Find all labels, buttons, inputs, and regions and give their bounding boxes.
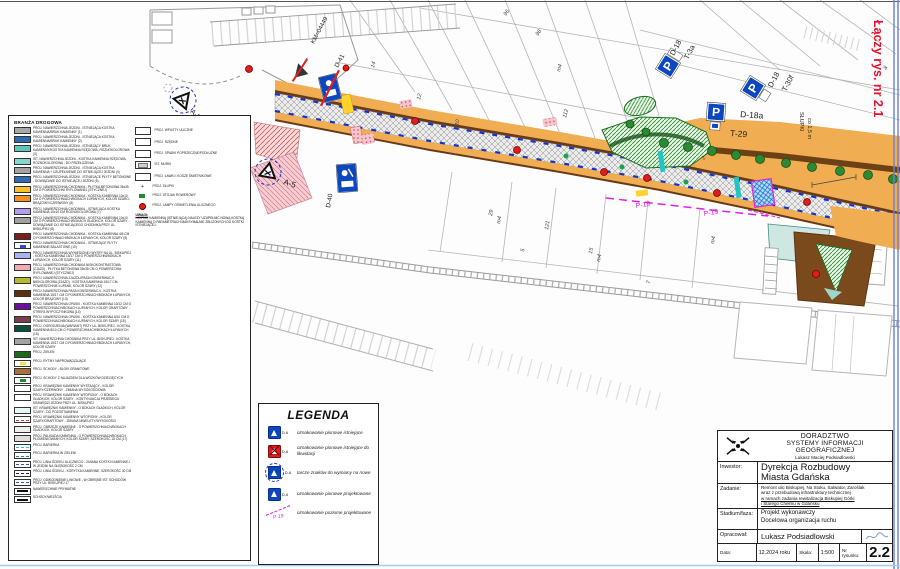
investor-value: Dyrekcja Rozbudowy Miasta Gdańska (758, 462, 892, 483)
legend-label: PROJ. OBRZEŻE KAMIENNE - O POWIERZCHNIAC… (33, 426, 131, 434)
swatch-inner (20, 379, 26, 382)
legend-swatch (14, 158, 31, 165)
upper-parking-lot (150, 4, 460, 98)
task-label: Zadanie: (718, 484, 758, 508)
parcel-number: 5 (520, 247, 527, 252)
legend-side-label: PROJ. WPUSTY ULICZNE (154, 129, 192, 133)
investor-label: Inwestor: (718, 462, 758, 483)
road-works-legend-panel: BRANŻA DROGOWA PROJ. NAWIERZCHNIA JEZDNI… (8, 115, 251, 561)
legend-side-row: PROJ. LAMPY OŚWIETLENIA ULICZNEGO (135, 203, 247, 209)
legend-label: IST. KRAWĘŻNIK KAMIENNY - O BOKACH GŁADK… (33, 407, 131, 415)
legend-label: PROJ. NAWIERZCHNIA WYNIESIONEJ WYSPY NA … (33, 252, 131, 263)
legend-label: PROJ. ZIELEŃ (33, 351, 54, 355)
legend-label: PROJ. NAWIERZCHNIA CHODNIKA - ISTNIEJĄCA… (33, 208, 131, 216)
number-label-cell: Nr rysunku: (840, 544, 867, 561)
signage-legend-box: LEGENDA D-6oznakowanie pionowe istniejąc… (258, 403, 379, 565)
legend-row: PROJ. NAWIERZCHNIA WYNIESIONEJ WYSPY NA … (14, 252, 131, 263)
legend-side-label: PROJ. RZĘDNE (154, 141, 177, 145)
legend-side-label: PROJ. SŁUPKI (152, 185, 174, 189)
legend-side-label: PROJ. SPADKI POPRZECZNE/PODŁUŻNE (154, 152, 217, 156)
legenda-label: oznakowanie poziome projektowane (297, 510, 371, 516)
legenda-row: P-19oznakowanie poziome projektowane (263, 506, 374, 520)
swatch-line (16, 473, 29, 474)
legend-label: PROJ. NAWIERZCHNIA CHODNIKA - KOSTKA KAM… (33, 217, 131, 232)
legend-row: PROJ. ZIELEŃ (14, 351, 131, 358)
author-value: Lukasz Podsiadlowski (758, 530, 861, 543)
legend-label: PROJ. KRAWĘŻNIK KAMIENNY WYSTAJĄCY - KOL… (33, 385, 131, 393)
pink-hatch-zone (250, 152, 312, 214)
investor-line2: Miasta Gdańska (761, 473, 889, 483)
legend-swatch (14, 316, 31, 323)
legend-swatch (14, 338, 31, 345)
legend-label: PROJ. NAWIERZCHNIA OPASKI - KOSTKA KAMIE… (33, 303, 131, 314)
legend-label: PROJ. RYTMY NAPROWADZAJĄCE (33, 360, 86, 364)
legenda-row: D-6tarcze znaków do wymiany na nowe (263, 463, 374, 482)
swatch-line (16, 447, 29, 448)
legend-swatch (14, 394, 31, 401)
legend-row: IST. KRAWĘŻNIK KAMIENNY - O BOKACH GŁADK… (14, 407, 131, 415)
swatch-plaque (17, 490, 28, 492)
legend-swatch (14, 461, 31, 468)
legend-row: PROJ. BARIERKA W ZIELENI (14, 452, 131, 459)
parcel-number: 98 (535, 28, 544, 37)
legend-row: PROJ. NAWIERZCHNIA JEZDNI - ISTNIEJĄCE P… (14, 176, 131, 184)
legenda-icon: D-6 (263, 445, 293, 458)
legend-swatch (14, 470, 31, 477)
legend-row: PROJ. PALISADA KAMIENNA - O POWIERZCHNIA… (14, 435, 131, 443)
legend-swatch (14, 136, 31, 143)
legend-swatch (14, 233, 31, 240)
map-label: P-19 (703, 209, 719, 218)
parcel-number: m4 (596, 254, 603, 263)
legenda-row: D-6oznakowanie pionowe istniejące (263, 426, 374, 439)
legend-swatch (14, 290, 31, 297)
legend-swatch (14, 377, 31, 384)
legend-row: PROJ. NAWIERZCHNIA PASA KONSERWACJI - KO… (14, 290, 131, 301)
company-line3: Lukasz Maciej Podsiadlowski (761, 455, 889, 460)
map-label: SŁUPKI (798, 112, 804, 132)
legend-note-text: KOSTKĘ KAMIENNĄ (ISTNIEJĄCĄ) NALEŻY UZUP… (135, 217, 245, 229)
swatch-line (16, 420, 29, 421)
legend-swatch (14, 195, 31, 202)
legenda-label: tarcze znaków do wymiany na nowe (297, 470, 371, 476)
legend-swatch (14, 167, 31, 174)
map-label: T-30f (780, 73, 796, 93)
legend-swatch (14, 351, 31, 358)
legend-swatch (14, 264, 31, 271)
legend-swatch (14, 252, 31, 259)
drawing-number-label: Nr rysunku: (842, 548, 864, 558)
legend-swatch (14, 479, 31, 486)
map-label: D-18 (766, 70, 782, 89)
date-value: 12.2024 roku (759, 550, 795, 556)
sign-replace-circle-icon (265, 463, 284, 482)
legend-label: IST. NAWIERZCHNIA CHODNIKA PRZY UL. BISK… (33, 338, 131, 349)
legend-side-label: PROJ. STOJAK ROWEROWY (152, 194, 195, 198)
signature (861, 530, 892, 543)
legend-label: PROJ. NAWIERZCHNIA JEZDNI - ISTNIEJĄCA K… (33, 167, 131, 175)
symbol-box-icon (135, 127, 151, 135)
road-legend-items: PROJ. NAWIERZCHNIA JEZDNI - ISTNIEJĄCA K… (14, 127, 131, 505)
disabled-parking-bay (751, 179, 774, 208)
legend-side-row: PROJ. WPUSTY ULICZNE (135, 127, 247, 135)
legend-side-row: PROJ. STOJAK ROWEROWY (135, 193, 247, 199)
legend-label: PROJ. NAWIERZCHNIA PASA KONSERWACJI - KO… (33, 290, 131, 301)
legend-swatch (14, 444, 31, 451)
legend-row: IST. NAWIERZCHNIA JEZDNI - KOSTKA KAMIEN… (14, 158, 131, 166)
swatch-inner (20, 245, 26, 248)
parcel-number: 15 (588, 246, 595, 254)
road-legend-title: BRANŻA DROGOWA (14, 120, 247, 125)
legend-label: IST. NAWIERZCHNIA JEZDNI - KOSTKA KAMIEN… (33, 158, 131, 166)
lower-parking-stalls (255, 301, 660, 402)
legenda-label: oznakowanie pionowe istniejące (297, 430, 363, 436)
legend-swatch (14, 407, 31, 414)
legend-label: PROJ. NAWIERZCHNIA CHODNIKA - KOSTKA KAM… (33, 233, 131, 241)
map-label: P-19 (635, 201, 651, 210)
sign-code: D-6 (285, 470, 291, 475)
stage-line2: Docelowa organizacja ruchu (761, 518, 889, 526)
legend-side-row: IST. MURKI (135, 161, 247, 169)
parking-sign-letter: P (711, 105, 720, 120)
legend-row: PROJ. OBRZEŻE KAMIENNE - O POWIERZCHNIAC… (14, 426, 131, 434)
legend-label: PROJ. NAWIERZCHNIA JEZDNI - ISTNIEJĄCY B… (33, 145, 131, 156)
legenda-row: D-6oznakowanie pionowe istniejące do lik… (263, 445, 374, 458)
legend-label: PROJ. SCHODY Z NAJAZDEM DLA WÓZKÓW DZIEC… (33, 377, 123, 381)
bike-rack-icon (135, 193, 149, 199)
legend-label: PROJ. LINIA ŚCIEKU - KORYTKA KAMIENNE, S… (33, 470, 131, 474)
company-line2: SYSTEMY INFORMACJI GEOGRAFICZNEJ (761, 440, 889, 454)
legend-swatch (14, 452, 31, 459)
parcel-number: m4 (496, 216, 503, 225)
sign-code: D-6 (282, 430, 288, 435)
swatch-inner (20, 362, 26, 365)
task-line: i Starego Chełmu w Gdańsku (761, 501, 889, 506)
legend-label: PROJ. ODWODNIENIE LINIOWE - W OBRĘBIE IS… (33, 479, 131, 487)
legend-row: PROJ. SCHODY Z NAJAZDEM DLA WÓZKÓW DZIEC… (14, 377, 131, 384)
symbol-box-icon (135, 173, 151, 181)
map-label: T-29 (730, 128, 748, 139)
legend-side-label: IST. MURKI (154, 163, 171, 167)
drawing-sheet: { "connector_note": "Łączy rys. nr 2.1",… (0, 0, 900, 569)
wall-icon (135, 161, 151, 169)
legend-side-row: PROJ. ŁAWKI I KOSZE ŚMIETNIKOWE (135, 173, 247, 181)
legend-label: PROJ. NAWIERZCHNIA CHODNIKA - KOSTKA KAM… (33, 195, 131, 206)
legenda-items: D-6oznakowanie pionowe istniejąceD-6ozna… (263, 426, 374, 520)
parcel-number: 29 (488, 209, 495, 217)
legenda-row: D-6oznakowanie pionowe projektowane (263, 488, 374, 501)
legend-swatch (14, 217, 31, 224)
legend-row: PROJ. RYTMY NAPROWADZAJĄCE (14, 360, 131, 367)
swatch-line (16, 482, 29, 483)
legend-row: PROJ. NAWIERZCHNIA JEZDNI - ISTNIEJĄCY B… (14, 145, 131, 156)
legenda-icon: D-6 (263, 488, 293, 501)
parcel-number: 121 (544, 220, 552, 230)
legend-swatch (14, 416, 31, 423)
legend-swatch (14, 277, 31, 284)
sign-code: D-6 (282, 449, 288, 454)
legend-row: NAWIERZCHNIE PRYWATNE (14, 488, 131, 495)
wall-inner (138, 163, 148, 168)
crossing-sign-removed-icon (268, 445, 281, 458)
legend-row: PROJ. SCHODY - BLOKI GRANITOWE (14, 368, 131, 375)
legend-row: PROJ. NAWIERZCHNIA JEZDNI - ISTNIEJĄCA K… (14, 136, 131, 144)
legend-row: PROJ. NAWIERZCHNIA CHODNIKA - KOSTKA KAM… (14, 233, 131, 241)
bollard-icon: + (135, 184, 149, 190)
legend-row: PROJ. NAWIERZCHNIA ZJAZDU/PASA KONSERWAC… (14, 277, 131, 288)
sign-liquidated (288, 59, 312, 82)
legenda-icon: D-6 (263, 426, 293, 439)
legend-side-label: PROJ. LAMPY OŚWIETLENIA ULICZNEGO (152, 204, 215, 208)
legend-row: PROJ. NAWIERZCHNIA CHODNIKA - ISTNIEJĄCE… (14, 242, 131, 250)
legend-label: PROJ. NAWIERZCHNIA JEZDNI - ISTNIEJĄCA K… (33, 136, 131, 144)
crossing-sign-icon (268, 488, 281, 501)
legend-note: UWAGI: KOSTKĘ KAMIENNĄ (ISTNIEJĄCĄ) NALE… (135, 213, 245, 229)
legend-label: PROJ. KRAWĘŻNIK KAMIENNY WTOPIONY - KOLO… (33, 416, 131, 424)
legend-label: PROJ. PALISADA KAMIENNA - O POWIERZCHNIA… (33, 435, 131, 443)
legend-swatch (14, 208, 31, 215)
legenda-label: oznakowanie pionowe istniejące do likwid… (297, 445, 374, 456)
legend-row: PROJ. BARIERKA (14, 444, 131, 451)
author-label: Opracował: (718, 530, 758, 543)
legend-label: NAWIERZCHNIE PRYWATNE (33, 488, 76, 492)
legend-swatch (14, 325, 31, 332)
legend-label: PROJ. SCHODY - BLOKI GRANITOWE (33, 368, 90, 372)
parcel-number: m4 (556, 64, 564, 73)
legend-row: PROJ. NAWIERZCHNIA CHODNIKA - KOSTKA KAM… (14, 217, 131, 232)
legenda-title: LEGENDA (263, 408, 374, 422)
sign-d40-projected (336, 163, 358, 192)
company-block: DORADZTWO SYSTEMY INFORMACJI GEOGRAFICZN… (758, 431, 892, 461)
legend-label: PROJ. NAWIERZCHNIA CHODNIKA NISKOKONTRAS… (33, 264, 131, 275)
legend-swatch (14, 176, 31, 183)
legend-side-row: PROJ. RZĘDNE (135, 138, 247, 146)
legend-row: PROJ. KRAWĘŻNIK KAMIENNY WYSTAJĄCY - KOL… (14, 385, 131, 393)
symbol-box-icon (135, 150, 151, 158)
scale-value: 1:500 (821, 550, 837, 556)
legend-row: PROJ. NAWIERZCHNIA CHODNIKA NISKOKONTRAS… (14, 264, 131, 275)
legend-label: PROJ. BARIERKA W ZIELENI (33, 452, 76, 456)
legend-row: PROJ. NAWIERZCHNIA CHODNIKA - PŁYTKA BET… (14, 186, 131, 194)
legend-swatch (14, 127, 31, 134)
legend-label: PROJ. NAWIERZCHNIA CHODNIKA - ISTNIEJĄCE… (33, 242, 131, 250)
stage-label: Stadium/faza: (718, 509, 758, 530)
crossing-sign-icon (268, 466, 281, 479)
stage-value: Projekt wykonawczy Docelowa organizacja … (758, 509, 892, 530)
legend-label: PROJ. NAWIERZCHNIA CHODNIKA - PŁYTKA BET… (33, 186, 131, 194)
drawing-number: 2.2 (867, 544, 892, 561)
swatch-line (16, 464, 29, 465)
legend-row: PROJ. KRAWĘŻNIK KAMIENNY WTOPIONY - O BO… (14, 394, 131, 405)
title-block: DORADZTWO SYSTEMY INFORMACJI GEOGRAFICZN… (717, 430, 893, 562)
legend-swatch (14, 145, 31, 152)
legenda-label: oznakowanie pionowe projektowane (297, 491, 371, 497)
small-stalls (805, 32, 862, 46)
legend-row: PROJ. NAWIERZCHNIA JEZDNI - ISTNIEJĄCA K… (14, 127, 131, 135)
legend-side-label: PROJ. ŁAWKI I KOSZE ŚMIETNIKOWE (154, 175, 211, 179)
lamp-icon (135, 203, 149, 209)
date-value-cell: 12.2024 roku (757, 544, 798, 561)
date-label: Data: (720, 550, 754, 555)
road-legend-side-items: PROJ. WPUSTY ULICZNEPROJ. RZĘDNEPROJ. SP… (135, 127, 247, 209)
legend-label: PROJ. NAWIERZCHNIA ZJAZDU/PASA KONSERWAC… (33, 277, 131, 288)
crossing-sign-icon (268, 426, 281, 439)
p19-line-icon: P-19 (265, 506, 291, 520)
parcel-number: 112 (562, 108, 570, 118)
date-label-cell: Data: (718, 544, 757, 561)
legend-row: PROJ. NAWIERZCHNIA JEZDNI - ISTNIEJĄCA K… (14, 167, 131, 175)
legend-swatch (14, 303, 31, 310)
scale-label-cell: Skala: (797, 544, 818, 561)
company-line1: DORADZTWO (761, 433, 889, 440)
legend-swatch (14, 488, 31, 495)
legend-row: PROJ. OGRODZENIA (WARIANT) PRZY UL. BISK… (14, 325, 131, 336)
legend-row: SCHODY/WEJŚCIA (14, 496, 131, 503)
legend-swatch (14, 360, 31, 367)
parcel-number: 7 (646, 279, 653, 284)
parcel-number: 12 (416, 93, 423, 100)
map-label: KM=04449 (310, 16, 329, 45)
legend-swatch (14, 496, 31, 503)
symbol-box-icon (135, 138, 151, 146)
legend-swatch (14, 242, 31, 249)
parcel-number: 14 (370, 61, 377, 68)
legend-label: PROJ. NAWIERZCHNIA JEZDNI - ISTNIEJĄCE P… (33, 176, 131, 184)
legend-label: PROJ. NAWIERZCHNIA JEZDNI - ISTNIEJĄCA K… (33, 127, 131, 135)
legend-swatch (14, 368, 31, 375)
legend-row: PROJ. ODWODNIENIE LINIOWE - W OBRĘBIE IS… (14, 479, 131, 487)
sign-code: P-19 (272, 513, 283, 521)
swatch-line (16, 456, 29, 457)
legenda-icon: D-6 (263, 463, 293, 482)
legenda-icon: P-19 (263, 506, 293, 520)
task-value: Remont ulic Biskupiej, Na Stoku, Salwato… (758, 484, 892, 508)
map-label: D-40 (325, 193, 334, 208)
legend-row: PROJ. NAWIERZCHNIA OPASKI - KOSTKA KAMIE… (14, 316, 131, 324)
legend-side-row: +PROJ. SŁUPKI (135, 184, 247, 190)
map-label: D-18a (740, 109, 764, 121)
buildings (734, 302, 892, 376)
legend-label: PROJ. NAWIERZCHNIA OPASKI - KOSTKA KAMIE… (33, 316, 131, 324)
legend-row: IST. NAWIERZCHNIA CHODNIKA PRZY UL. BISK… (14, 338, 131, 349)
sign-code: D-6 (282, 492, 288, 497)
legend-row: PROJ. NAWIERZCHNIA CHODNIKA - ISTNIEJĄCA… (14, 208, 131, 216)
legend-label: SCHODY/WEJŚCIA (33, 496, 62, 500)
legend-label: PROJ. KRAWĘŻNIK KAMIENNY WTOPIONY - O BO… (33, 394, 131, 405)
scale-value-cell: 1:500 (819, 544, 840, 561)
legend-swatch (14, 186, 31, 193)
map-label: co 1,5 m (806, 118, 812, 140)
legend-label: PROJ. OGRODZENIA (WARIANT) PRZY UL. BISK… (33, 325, 131, 336)
parcel-number: 96 (503, 8, 512, 17)
legend-label: PROJ. LINIA ŚCIEKU ULICZNEGO - ZMIANA KO… (33, 461, 131, 469)
scale-label: Skala: (799, 550, 815, 555)
swatch-plaque (17, 499, 28, 501)
company-logo (718, 431, 758, 461)
legend-swatch (14, 385, 31, 392)
legend-row: PROJ. NAWIERZCHNIA OPASKI - KOSTKA KAMIE… (14, 303, 131, 314)
map-label: T-3a (682, 43, 697, 61)
legend-row: PROJ. LINIA ŚCIEKU - KORYTKA KAMIENNE, S… (14, 470, 131, 477)
legend-swatch (14, 435, 31, 442)
legend-row: PROJ. LINIA ŚCIEKU ULICZNEGO - ZMIANA KO… (14, 461, 131, 469)
legend-row: PROJ. NAWIERZCHNIA CHODNIKA - KOSTKA KAM… (14, 195, 131, 206)
legend-row: PROJ. KRAWĘŻNIK KAMIENNY WTOPIONY - KOLO… (14, 416, 131, 424)
legend-side-row: PROJ. SPADKI POPRZECZNE/PODŁUŻNE (135, 150, 247, 158)
legend-swatch (14, 426, 31, 433)
stage-line1: Projekt wykonawczy (761, 510, 889, 518)
legend-label: PROJ. BARIERKA (33, 444, 59, 448)
parcel-number: m4 (710, 236, 717, 245)
